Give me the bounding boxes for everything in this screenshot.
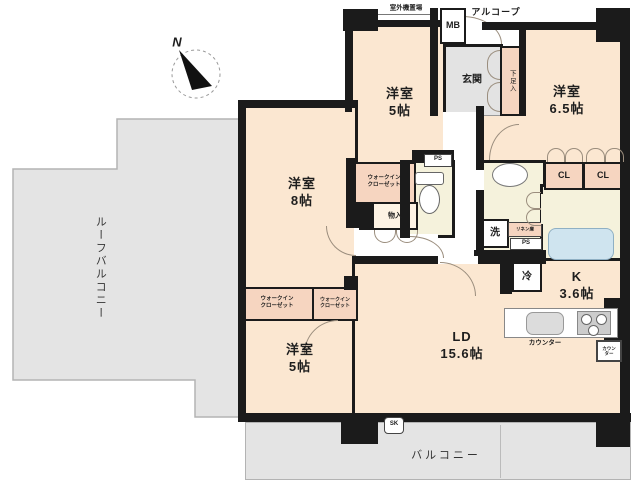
door-opening (476, 170, 484, 190)
wic-top-label: ウォークイン クローゼット (367, 175, 400, 190)
pipe-space-wash-label: PS (522, 240, 530, 248)
bathtub (548, 228, 614, 260)
wall (620, 22, 630, 422)
slop-sink-label: SK (390, 421, 398, 429)
entrance-door-arc (462, 16, 502, 44)
bath-door-arc (526, 209, 541, 226)
toilet-bowl (419, 185, 440, 214)
outdoor-unit-label: 室外機置場 (390, 5, 423, 14)
genkan-label: 玄関 (462, 73, 482, 86)
wall-pillar (596, 413, 630, 447)
wall (345, 20, 352, 112)
stove-burner (588, 325, 599, 336)
linen-label: リネン庫 (516, 226, 534, 231)
door-opening (541, 194, 546, 224)
compass-north-indicator: N (163, 28, 238, 106)
kitchen-sink (526, 312, 564, 335)
bedroom-left-label: 洋室 8帖 (288, 175, 316, 209)
closet-door-arc (605, 148, 624, 162)
closet-door-arc (565, 148, 583, 162)
counter-label: カウンター (529, 340, 562, 349)
bath-door-arc (526, 192, 541, 209)
wall (238, 413, 631, 422)
wall-pillar (341, 413, 378, 444)
closet-door-arc (586, 148, 605, 162)
living-dining-label: LD 15.6帖 (440, 328, 483, 362)
kitchen-label: K 3.6帖 (559, 268, 594, 302)
storage-box-label: 物入 (388, 211, 402, 220)
shoe-cabinet-label: 下足入 (507, 70, 516, 93)
closet-left-label: CL (558, 170, 570, 182)
meter-box-label: MB (446, 20, 460, 32)
closet-door-arc (547, 148, 565, 162)
pipe-space-wc-label: PS (434, 156, 442, 164)
wall-pillar (344, 276, 358, 290)
closet-right-label: CL (597, 170, 609, 182)
room-seam-patch (519, 109, 527, 165)
wall (356, 202, 374, 230)
wall (519, 22, 526, 116)
wall (500, 250, 512, 294)
balcony-divider (500, 425, 501, 478)
vanity-sink (492, 163, 528, 187)
wic-mid-left-label: ウォークイン クローゼット (260, 296, 293, 311)
wall-pillar (596, 8, 630, 42)
alcove-label: アルコープ (471, 7, 520, 19)
wall (430, 8, 438, 116)
compass-n-label: N (172, 33, 181, 50)
roof-balcony-area (12, 118, 241, 418)
toilet-tank (415, 172, 444, 185)
wall (238, 100, 246, 422)
bedroom-bottom-label: 洋室 5帖 (286, 341, 314, 375)
balcony-label: バルコニー (411, 449, 481, 464)
fridge-label: 冷 (522, 270, 532, 283)
wall (400, 160, 410, 238)
floor-plan: N ルーフバルコニー バルコニー (0, 0, 639, 496)
stove-burner (596, 314, 607, 325)
washer-label: 洗 (490, 226, 500, 239)
stove-burner (581, 314, 592, 325)
wall (239, 100, 355, 108)
roof-balcony-label: ルーフバルコニー (93, 216, 108, 320)
bedroom-top-label: 洋室 5帖 (386, 85, 414, 119)
wic-mid-right-label: ウォークイン クローゼット (320, 297, 350, 309)
wall (346, 158, 356, 228)
bedroom-right-label: 洋室 6.5帖 (549, 83, 584, 117)
counter-side-label: カウン ター (602, 346, 616, 356)
